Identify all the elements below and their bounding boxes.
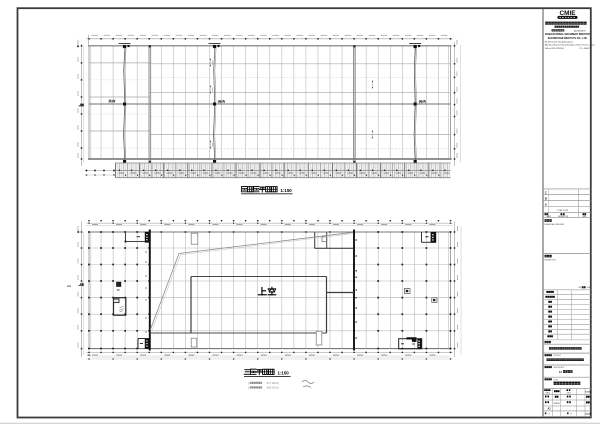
svg-text:FOR CON.: FOR CON. xyxy=(558,210,569,212)
svg-text:DATE: DATE xyxy=(583,215,587,218)
svg-text:PROJECT No.: PROJECT No. xyxy=(545,259,557,261)
svg-text:9: 9 xyxy=(571,414,572,416)
svg-text:(: ( xyxy=(248,385,249,389)
svg-text:1:150: 1:150 xyxy=(281,188,293,193)
svg-text:SUB PROJECT: SUB PROJECT xyxy=(554,367,565,369)
svg-text:1:150: 1:150 xyxy=(278,371,290,376)
svg-text:A123005678: A123005678 xyxy=(574,29,586,32)
svg-text:DESCRIPTION: DESCRIPTION xyxy=(558,216,568,218)
svg-text:2023.06: 2023.06 xyxy=(553,403,559,405)
svg-text:SCALE: SCALE xyxy=(566,391,570,394)
svg-text:No.100 Jianshe Road Zhengzhou: No.100 Jianshe Road Zhengzhou xyxy=(545,41,573,43)
svg-text:A2: A2 xyxy=(547,407,551,410)
svg-text:TITLE: TITLE xyxy=(554,379,558,381)
svg-text:(: ( xyxy=(248,381,249,385)
svg-text:1#: 1# xyxy=(559,370,562,374)
svg-text::863.00m2): :863.00m2) xyxy=(266,386,279,389)
svg-text:B: B xyxy=(545,197,547,201)
svg-text:CHINA NATIONAL MACHINERY INDUS: CHINA NATIONAL MACHINERY INDUSTRY xyxy=(545,33,591,36)
svg-text:05-: 05- xyxy=(578,287,581,289)
svg-text:C: C xyxy=(545,191,547,195)
svg-text:DESIGN No. 2023-0456: DESIGN No. 2023-0456 xyxy=(545,224,564,226)
svg-text:PROJECT: PROJECT xyxy=(554,355,561,357)
svg-text:STAGE: STAGE xyxy=(545,391,549,394)
svg-text:P.C.: 450007: P.C.: 450007 xyxy=(580,48,590,50)
svg-text:1:150: 1:150 xyxy=(585,392,591,394)
svg-text:A: A xyxy=(545,202,547,206)
svg-text:SECOND D&R INSTITUTE CO., LTD.: SECOND D&R INSTITUTE CO., LTD. xyxy=(548,38,588,40)
svg-text:Tel/Fax: 0371-67891234: Tel/Fax: 0371-67891234 xyxy=(545,48,564,50)
svg-text:Add: No.10 Huashan Road, Zheng: Add: No.10 Huashan Road, Zhengzhou, Hena… xyxy=(545,44,595,47)
svg-text:3: 3 xyxy=(549,414,550,416)
svg-text:03-04: 03-04 xyxy=(585,413,591,416)
svg-text:CMIE: CMIE xyxy=(560,10,577,17)
svg-text::977.46m2): :977.46m2) xyxy=(266,382,279,385)
